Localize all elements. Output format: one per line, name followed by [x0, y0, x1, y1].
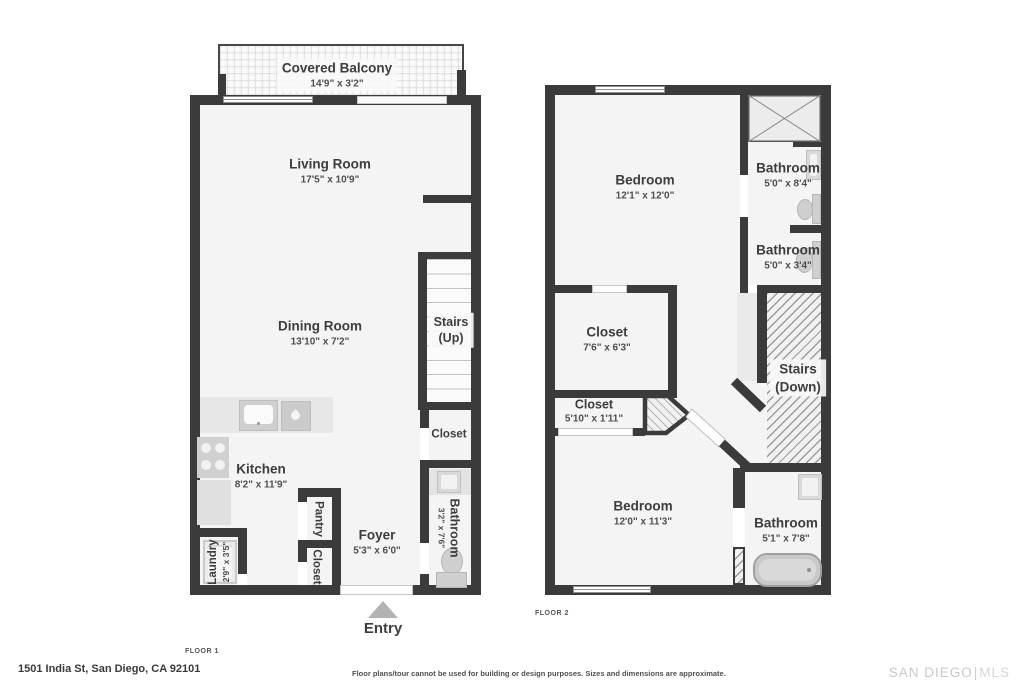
room-dims: 5'10" x 1'11" — [565, 413, 623, 426]
wall — [298, 540, 341, 548]
wall — [420, 574, 429, 585]
door-opening — [298, 502, 307, 540]
balcony-label: Covered Balcony 14'9" x 3'2" — [277, 59, 397, 92]
entry-label: Entry — [364, 620, 402, 637]
room-dims: 12'1" x 12'0" — [615, 189, 674, 202]
balcony-door-opening — [357, 96, 447, 104]
room-dims: 5'0" x 8'4" — [756, 177, 820, 190]
sink-drain — [257, 422, 260, 425]
room-dims: 12'0" x 11'3" — [613, 515, 672, 528]
room-dims: 5'3" x 6'0" — [353, 544, 401, 557]
door-opening — [420, 428, 429, 460]
foyer-label: Foyer 5'3" x 6'0" — [353, 527, 401, 558]
diagonal-wall — [734, 381, 763, 409]
hall-closet-label: Closet — [431, 428, 466, 443]
room-name: Bathroom — [756, 242, 820, 260]
door-opening — [238, 574, 247, 585]
room-name: Laundry — [206, 539, 221, 584]
wall — [418, 252, 481, 259]
kitchen-sink — [239, 400, 278, 431]
room-name: Stairs — [434, 314, 469, 330]
disclaimer: Floor plans/tour cannot be used for buil… — [352, 669, 726, 678]
water-drop-icon — [289, 409, 302, 422]
room-name: Closet — [309, 549, 324, 584]
entry-closet-label: Closet — [309, 549, 324, 584]
wall — [420, 468, 429, 543]
room-name: Bedroom — [615, 172, 674, 190]
room-name: Bathroom — [754, 515, 818, 533]
bathroom2-label: Bathroom 5'0" x 3'4" — [756, 242, 820, 273]
room-name: Bathroom — [756, 160, 820, 178]
floor2-tag: FLOOR 2 — [535, 610, 569, 617]
diagonal-wall — [722, 443, 749, 468]
door-opening — [420, 543, 429, 574]
brand-name: SAN DIEGO — [889, 665, 973, 680]
angled-door-opening — [686, 409, 725, 447]
room-name: Covered Balcony — [282, 60, 392, 78]
room-dims: 17'5" x 10'9" — [289, 173, 371, 186]
pantry-label: Pantry — [311, 501, 326, 537]
brand-suffix: MLS — [979, 665, 1010, 680]
entry-arrow-icon — [368, 601, 398, 618]
living-room-label: Living Room 17'5" x 10'9" — [289, 156, 371, 187]
bathroom1-label: Bathroom 5'0" x 8'4" — [756, 160, 820, 191]
stairs-up-label: Stairs (Up) — [429, 313, 474, 348]
room-name: Pantry — [311, 501, 326, 537]
room-name: Bedroom — [613, 498, 672, 516]
sink-basin — [441, 475, 457, 489]
door-opening — [298, 562, 307, 585]
bedroom1-label: Bedroom 12'1" x 12'0" — [615, 172, 674, 203]
kitchen-counter — [197, 480, 231, 525]
room-dims: 5'1" x 7'8" — [754, 532, 818, 545]
entry-door-opening — [340, 585, 413, 595]
hatched-wedge-wall — [645, 396, 689, 433]
wall — [298, 548, 307, 562]
floorplan-page: Entry Covered Balcony 14'9" x 3'2" Livin… — [0, 0, 1024, 683]
mls-logo: SAN DIEGO|MLS — [889, 665, 1010, 680]
stairs-down-label: Stairs (Down) — [770, 359, 826, 396]
dishwasher — [281, 401, 311, 431]
bathroom1-f1-label: Bathroom 3'2" x 7'6" — [435, 498, 462, 557]
stairs-direction: (Down) — [775, 378, 821, 396]
bathroom-sink — [437, 471, 461, 493]
room-name: Stairs — [775, 360, 821, 378]
stove — [197, 437, 229, 478]
dining-room-label: Dining Room 13'10" x 7'2" — [278, 318, 362, 349]
room-name: Closet — [431, 428, 466, 443]
room-dims: 8'2" x 11'9" — [235, 478, 288, 491]
room-name: Closet — [565, 396, 623, 412]
bathroom3-label: Bathroom 5'1" x 7'8" — [754, 515, 818, 546]
room-dims: 14'9" x 3'2" — [282, 77, 392, 90]
wall — [420, 460, 481, 468]
wall — [420, 410, 429, 428]
wall — [298, 488, 307, 502]
room-dims: 2'9" x 3'5" — [221, 539, 232, 584]
bedroom2-label: Bedroom 12'0" x 11'3" — [613, 498, 672, 529]
stairs-direction: (Up) — [434, 330, 469, 346]
window — [223, 96, 313, 103]
floor1-tag: FLOOR 1 — [185, 648, 219, 655]
room-dims: 3'2" x 7'6" — [435, 498, 446, 557]
toilet-tank — [436, 572, 467, 588]
room-dims: 7'6" x 6'3" — [583, 341, 631, 354]
room-name: Foyer — [353, 527, 401, 545]
room-name: Kitchen — [235, 461, 288, 479]
closet2-label: Closet 5'10" x 1'11" — [565, 396, 623, 425]
room-name: Living Room — [289, 156, 371, 174]
room-dims: 5'0" x 3'4" — [756, 259, 820, 272]
wall — [418, 402, 481, 410]
wall — [332, 488, 341, 585]
room-name: Bathroom — [446, 498, 462, 557]
wall — [418, 252, 427, 409]
room-name: Dining Room — [278, 318, 362, 336]
closet1-label: Closet 7'6" x 6'3" — [583, 324, 631, 355]
kitchen-label: Kitchen 8'2" x 11'9" — [235, 461, 288, 492]
room-dims: 13'10" x 7'2" — [278, 335, 362, 348]
room-name: Closet — [583, 324, 631, 342]
wall — [423, 195, 481, 203]
wall — [238, 528, 247, 574]
laundry-label: Laundry 2'9" x 3'5" — [206, 539, 232, 584]
wall — [457, 70, 466, 95]
address: 1501 India St, San Diego, CA 92101 — [18, 663, 200, 675]
wall — [218, 74, 226, 95]
